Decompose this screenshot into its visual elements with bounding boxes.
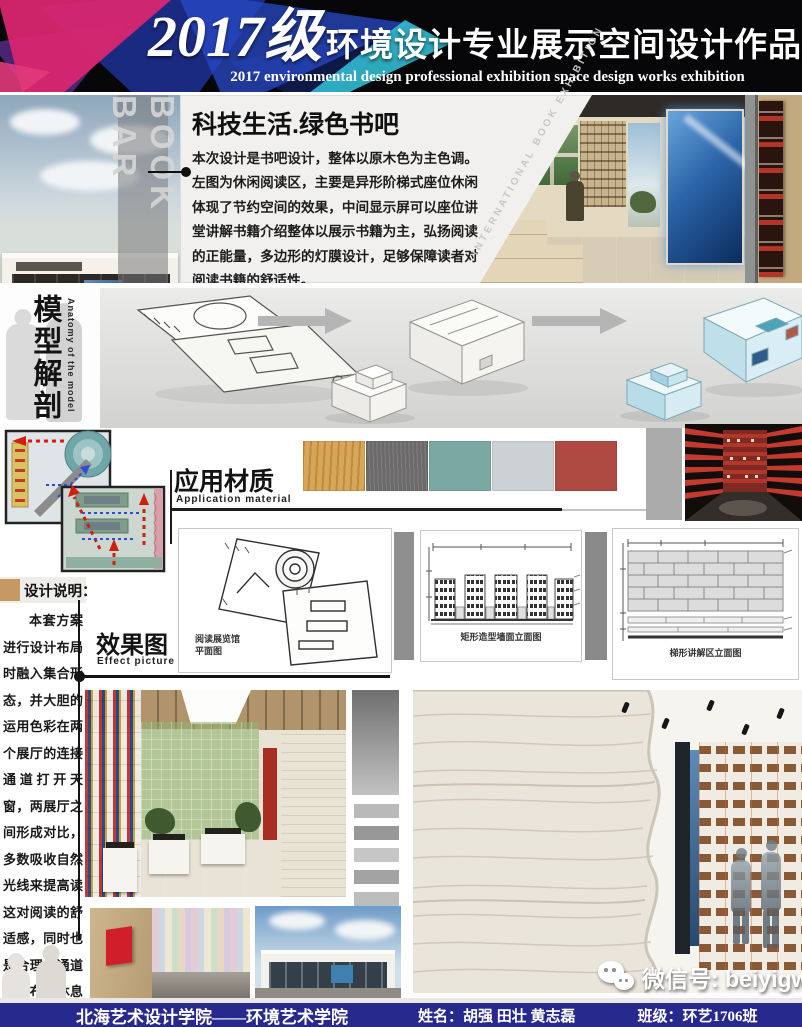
materials-title-cn: 应用材质 xyxy=(174,462,274,498)
display-screen xyxy=(666,109,744,265)
materials-title-en: Application material xyxy=(176,494,292,505)
design-notes-title: 设计说明： xyxy=(24,580,97,601)
interior-plant xyxy=(630,191,656,213)
walking-person xyxy=(761,840,781,910)
circulation-plan-diagram xyxy=(2,427,168,575)
divider-segment xyxy=(354,892,399,906)
screen-light-streak xyxy=(683,114,745,176)
screen xyxy=(331,965,353,983)
effect-photo-corridor xyxy=(90,908,250,998)
wechat-id-text: 微信号: beiyigw xyxy=(642,960,802,994)
effect-photo-exterior xyxy=(255,906,401,998)
display-plinth xyxy=(149,840,189,874)
cloud xyxy=(335,920,395,940)
material-swatch-gray xyxy=(492,441,554,491)
interior-bookshelf-wall xyxy=(580,121,626,207)
connector-dot xyxy=(74,671,85,682)
footer-class-name: 班级：环艺1706班 xyxy=(638,1005,758,1026)
model-anatomy-title-cn: 模型解剖 xyxy=(24,294,66,422)
header-banner: 2017级 环境设计专业展示空间设计作品展 2017 environmental… xyxy=(0,0,802,92)
material-swatch-concrete xyxy=(366,441,428,491)
brick-elevation-caption: 梯形讲解区立面图 xyxy=(613,647,798,659)
intro-paragraph: 本次设计是书吧设计，整体以原木色为主色调。左图为休闲阅读区，主要是异形阶梯式座位… xyxy=(192,147,478,293)
display-plinth xyxy=(103,848,137,892)
material-swatch-teal xyxy=(429,441,491,491)
divider-bar xyxy=(646,428,682,520)
ground xyxy=(255,988,401,998)
model-anatomy-sidebar: 模型解剖 Anatomy of the model xyxy=(0,288,100,428)
model-anatomy-title-en: Anatomy of the model xyxy=(66,298,76,413)
pastel-stripe-wall xyxy=(152,908,250,976)
spotlight xyxy=(706,699,715,711)
red-bookshelf-strip-photo xyxy=(745,95,802,283)
title-english-subtitle: 2017 environmental design professional e… xyxy=(175,69,800,86)
divider-bar xyxy=(585,532,607,660)
book-bar-text: BOOK BAR xyxy=(105,95,181,283)
exhibition-poster: 2017级 环境设计专业展示空间设计作品展 2017 environmental… xyxy=(0,0,802,1027)
effect-photo-wavy-wall xyxy=(413,690,802,993)
spotlight xyxy=(776,707,785,719)
title-chinese: 环境设计专业展示空间设计作品展 xyxy=(326,18,802,66)
seated-person xyxy=(566,181,584,221)
poster-title-row: 2017级 环境设计专业展示空间设计作品展 xyxy=(148,4,802,70)
cloud xyxy=(10,109,80,135)
red-accent-panel xyxy=(263,748,277,840)
walking-person xyxy=(731,848,751,912)
connector-line-vertical xyxy=(78,600,80,940)
plant xyxy=(145,808,175,834)
footer-bar: 北海艺术设计学院——环境艺术学院 姓名：胡强 田壮 黄志磊 班级：环艺1706班 xyxy=(0,1003,802,1027)
model-anatomy-diagram xyxy=(100,288,802,428)
red-library-photo xyxy=(685,424,802,521)
cloud xyxy=(269,912,325,930)
model-anatomy-band xyxy=(0,288,802,428)
building xyxy=(261,950,395,992)
divider-bar-gradient xyxy=(352,690,399,795)
floor-plan-panel: 阅读展览馆平面图 xyxy=(178,528,392,673)
building-signage xyxy=(16,262,82,271)
materials-rule-vertical xyxy=(170,470,172,544)
wechat-watermark: 微信号: beiyigw xyxy=(598,956,802,998)
wall-elevation-panel: 矩形造型墙面立面图 xyxy=(420,530,582,662)
spotlight xyxy=(741,723,750,735)
footer-school-name: 北海艺术设计学院——环境艺术学院 xyxy=(76,1003,348,1027)
intro-heading: 科技生活.绿色书吧 xyxy=(192,105,592,141)
red-bookshelf-column xyxy=(759,101,783,277)
red-artwork xyxy=(106,926,132,966)
materials-rule-horizontal-light xyxy=(562,509,648,511)
glass-front xyxy=(269,962,387,988)
design-notes-header: 设计说明： xyxy=(0,577,86,603)
callout-dot xyxy=(181,167,191,177)
divider-segment xyxy=(354,870,399,884)
brick-elevation-panel: 梯形讲解区立面图 xyxy=(612,528,799,680)
effect-title-en: Effect picture xyxy=(97,656,175,667)
effect-title-cn: 效果图 xyxy=(96,625,168,660)
wall-elevation-caption: 矩形造型墙面立面图 xyxy=(421,631,581,643)
divider-segment xyxy=(354,826,399,840)
skylight xyxy=(181,690,251,724)
material-swatch-wood xyxy=(303,441,365,491)
material-swatch-red xyxy=(555,441,617,491)
display-plinth xyxy=(201,834,245,864)
blue-light-strip xyxy=(690,750,699,946)
effect-photo-interior xyxy=(85,690,346,897)
design-notes-accent-block xyxy=(0,579,20,601)
divider-segment xyxy=(354,848,399,862)
floor-plan-caption: 阅读展览馆平面图 xyxy=(195,633,247,657)
wechat-icon xyxy=(598,961,634,993)
divider-segment xyxy=(354,804,399,818)
materials-rule-horizontal xyxy=(172,508,562,511)
wavy-wall-illustration xyxy=(413,690,683,993)
divider-bar xyxy=(394,532,414,660)
footer-student-names: 姓名：胡强 田壮 黄志磊 xyxy=(418,1005,576,1026)
connector-line-horizontal xyxy=(80,675,390,678)
book-bar-vertical-label: BOOK BAR xyxy=(118,95,168,283)
title-year: 2017级 xyxy=(148,4,322,70)
